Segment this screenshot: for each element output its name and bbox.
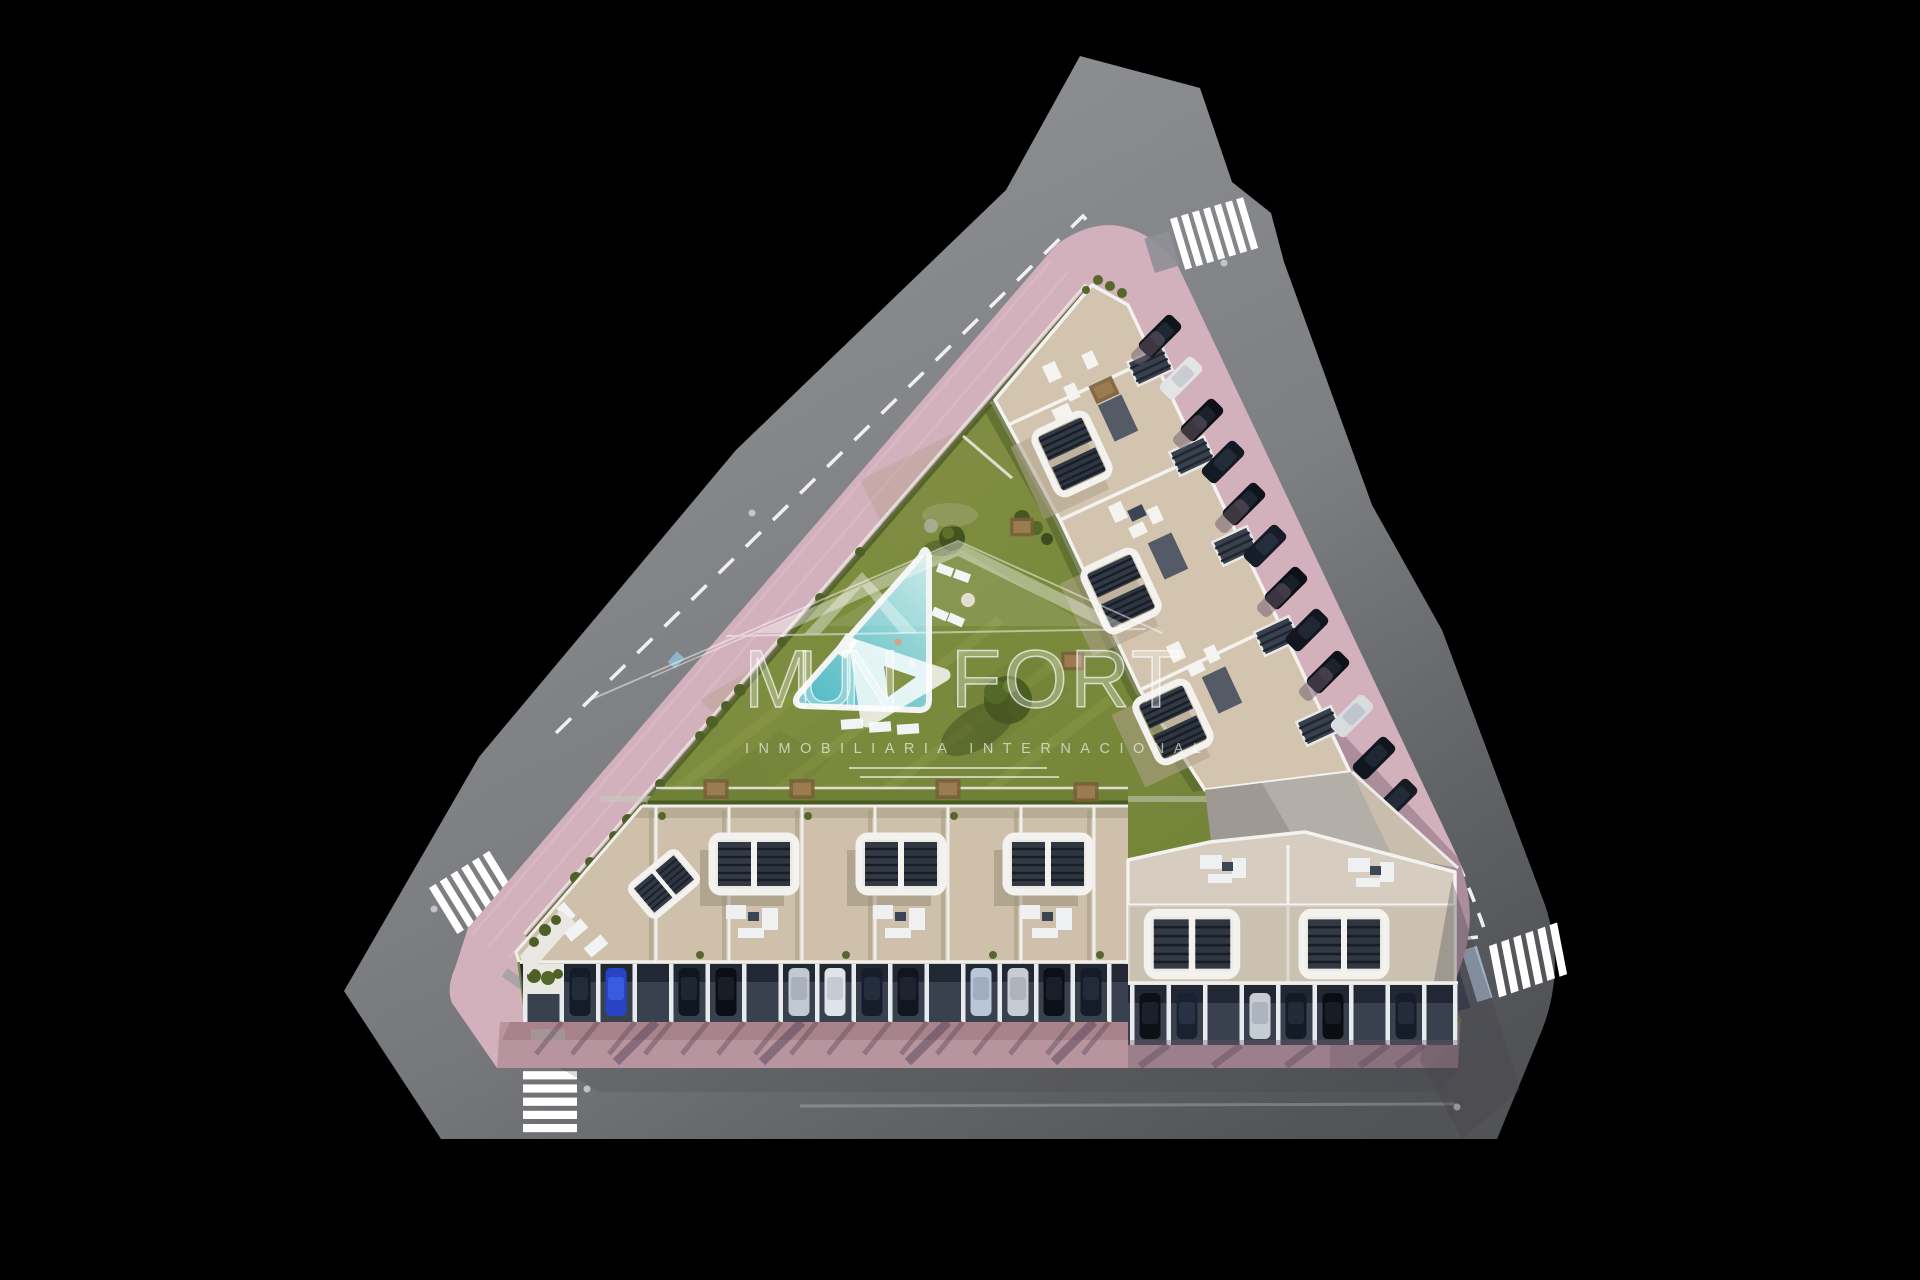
svg-text:MUN: MUN [744, 634, 900, 725]
svg-text:FORT: FORT [951, 634, 1181, 725]
